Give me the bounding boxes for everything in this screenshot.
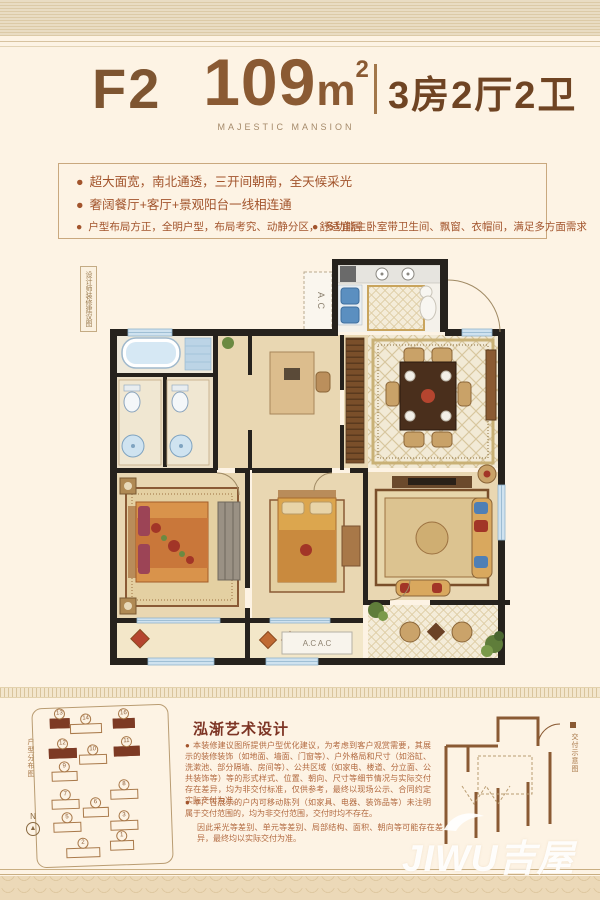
site-building-2: 2 [66, 847, 100, 858]
building-number: 2 [77, 838, 88, 849]
room-layout-label: 3房2厅2卫 [388, 64, 577, 119]
building-number: 10 [87, 744, 98, 755]
bullet-icon: ● [76, 175, 84, 189]
feature-item-2: ●奢阔餐厅+客厅+景观阳台一线相连通 [76, 194, 292, 213]
building-number: 12 [57, 738, 68, 749]
ac-duct-box: A.C [304, 272, 332, 330]
site-plan-buildings: 13141612101197865321 [32, 705, 172, 868]
bookshelf [346, 338, 364, 463]
sink-basin [341, 288, 359, 304]
dining-chair [386, 382, 399, 406]
dining-chair [404, 348, 424, 363]
disclaimer-paragraph-2: ●本广告展示的户内可移动陈列（如家具、电器、装饰品等）未注明属于交付范围的，均为… [185, 797, 431, 819]
bullet-icon: ● [312, 221, 318, 233]
building-number: 5 [61, 812, 72, 823]
site-building-3: 3 [110, 820, 138, 831]
delivery-plan-label: 交付示意图 [569, 733, 579, 773]
building-number: 7 [60, 789, 71, 800]
kitchen [338, 265, 442, 330]
building-number: 13 [54, 708, 65, 719]
site-building-1: 1 [110, 840, 134, 851]
site-building-6: 6 [83, 807, 109, 818]
building-number: 9 [59, 761, 70, 772]
dresser [342, 526, 360, 566]
desk [270, 352, 314, 414]
north-indicator: N ▲ [26, 812, 40, 836]
delivery-legend-square [570, 722, 576, 728]
building-number: 3 [118, 810, 129, 821]
building-number: 8 [118, 779, 129, 790]
building-number: 1 [116, 830, 127, 841]
master-bedroom [120, 478, 240, 614]
pillow [474, 520, 488, 532]
floor-plan: A.C [70, 250, 540, 670]
north-label: N [30, 812, 36, 821]
site-building-14: 14 [70, 723, 102, 734]
building-number: 6 [90, 797, 101, 808]
unit-type-label: F2 [92, 56, 161, 121]
watermark-text: JIWU吉屋 [402, 838, 575, 879]
site-building-9: 9 [51, 771, 77, 782]
sink-basin [341, 307, 359, 323]
site-building-12: 12 [49, 748, 77, 759]
dining-chair [404, 432, 424, 447]
site-plan-box: 13141612101197865321 [31, 704, 174, 869]
bird-icon [442, 810, 486, 832]
brand-subtitle: MAJESTIC MANSION [196, 122, 376, 132]
stove-block [340, 266, 356, 282]
description-title: 泓渐艺术设计 [193, 718, 289, 739]
centerpiece [421, 389, 435, 403]
pillow [138, 506, 150, 536]
compass-icon: ▲ [26, 822, 40, 836]
flyer-page: { "header": { "unit_type": "F2", "area_v… [0, 0, 600, 900]
header-divider [374, 64, 377, 114]
tv [408, 478, 456, 485]
delivery-door-arc [538, 724, 560, 746]
site-building-10: 10 [79, 754, 107, 765]
area-superscript: 2 [355, 56, 368, 83]
bullet-icon: ● [185, 798, 190, 807]
patio-chair [452, 622, 472, 642]
ac-lower-box: A.C A.C [282, 632, 352, 654]
pillow [282, 502, 304, 514]
area-value: 109 [203, 45, 316, 119]
watermark: JIWU吉屋 [402, 828, 592, 882]
site-building-7: 7 [51, 799, 79, 810]
bullet-icon: ● [185, 741, 190, 750]
toilet [172, 392, 188, 412]
bullet-icon: ● [76, 198, 84, 212]
site-building-5: 5 [53, 822, 81, 833]
ac-label: A.C [316, 292, 326, 310]
tick-divider-strip [0, 687, 600, 698]
bullet-icon: ● [76, 221, 82, 233]
headboard [128, 506, 136, 578]
building-number: 16 [118, 708, 129, 719]
dining-chair [432, 348, 452, 363]
patio-chair [400, 622, 420, 642]
site-building-16: 16 [113, 718, 135, 729]
area-unit: m [316, 66, 355, 115]
toilet [124, 392, 140, 412]
pillow [474, 502, 488, 514]
site-building-11: 11 [114, 746, 140, 757]
plant-icon [222, 337, 234, 349]
building-number: 14 [80, 713, 91, 724]
dining-chair [458, 382, 471, 406]
ac-lower-label: A.C A.C [303, 639, 332, 648]
feature-item-4: ●多功能主卧室带卫生间、飘窗、衣帽间，满足多方面需求 [312, 219, 587, 234]
desk-chair [316, 372, 330, 392]
building-number: 11 [121, 736, 132, 747]
pillow [432, 583, 442, 593]
feature-item-1: ●超大面宽，南北通透，三开间朝南，全天候采光 [76, 171, 352, 190]
wardrobe [218, 502, 240, 580]
pillow [138, 544, 150, 574]
headboard [278, 490, 336, 498]
kitchen-mat [368, 286, 424, 330]
pillow [474, 556, 488, 568]
pillow [310, 502, 332, 514]
rug-medallion [416, 522, 448, 554]
site-building-13: 13 [50, 718, 70, 729]
area-figure: 109m2 [196, 44, 376, 120]
top-border-pattern [0, 0, 600, 36]
site-building-8: 8 [110, 789, 138, 800]
tall-cabinet [486, 350, 496, 420]
dining-chair [432, 432, 452, 447]
